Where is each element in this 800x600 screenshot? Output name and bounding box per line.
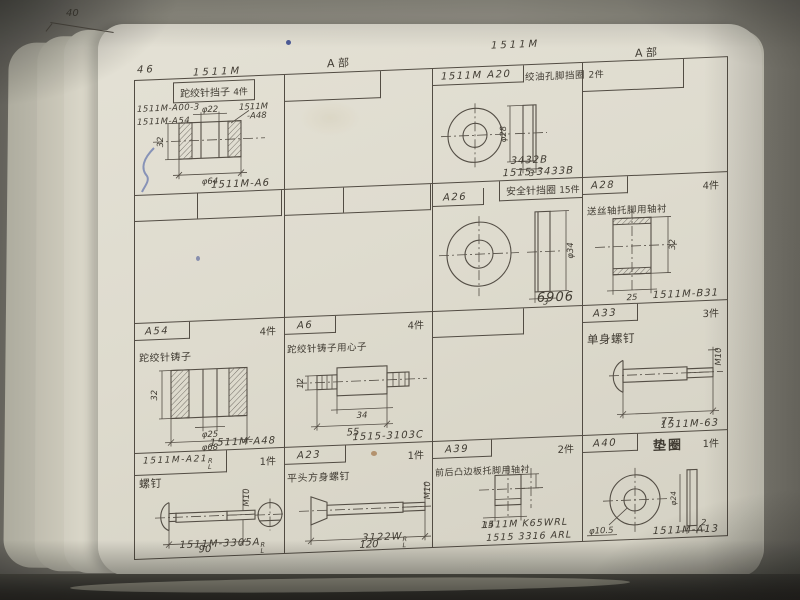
section-header-left: A 部 [327,54,349,71]
part-number: 3432B [511,154,548,166]
part-number: 1515 3316 ARL [486,529,572,543]
dim-text: 34 [357,411,368,421]
table-cell-r3c4: A33 3件 单身螺钉 M10 77 1511M-63 [583,300,727,436]
label-box-divider [197,193,198,218]
part-label: A33 [583,304,638,323]
blue-ink-dot [286,40,291,45]
part-label: A26 [433,188,484,207]
part-qty: 1件 [260,452,276,468]
part-label: A6 [285,316,336,335]
part-label: A39 [433,440,492,459]
part-label: A40 [583,434,638,453]
dim-text: 32 [150,390,160,401]
table-cell-r3c1: A54 4件 跎绞针铸子 φ25 φ68 32 1511M-A48 [135,318,285,454]
part-qty: 4件 [233,87,248,98]
empty-label-box [285,184,431,216]
table-cell-r2c2 [285,184,433,318]
part-qty: 4件 [260,322,276,338]
table-cell-r1c4 [583,57,727,178]
table-cell-r2c3: A26 安全针挡圈 15件 φ34 3 6906 [433,178,583,312]
part-number: 1511M-A13 [653,524,719,538]
part-number: 1515-3433B [503,165,574,179]
callout-text: -A48 [247,111,267,122]
table-cell-r2c4: A28 4件 送丝轴托脚用轴衬 32 25 1511M-B31 [583,172,727,306]
dim-text: φ24 [669,491,678,506]
part-qty: 3件 [703,305,719,321]
model-header-right: 1511M [491,39,540,52]
empty-label-box [433,308,524,338]
dim-text: M10 [242,488,252,507]
table-cell-r4c3: A39 2件 前后凸边板托脚用轴衬 14 1511M K65WRL 1515 3… [433,436,583,547]
part-title: 安全针挡圈 [506,185,556,198]
section-header-right: A 部 [635,44,657,61]
table-cell-r4c2: A23 1件 平头方身螺钉 M10 120 3122WRL [285,442,433,553]
table-cell-r3c2: A6 4件 跎绞针铸子用心子 12 34 55 151 [285,312,433,448]
dim-text: φ28 [499,125,509,142]
part-title-box: 安全针挡圈 15件 [499,178,582,201]
part-qty: 4件 [703,177,719,193]
table-cell-r2c1 [135,190,285,324]
part-label: 1511M A20 [433,65,524,86]
part-title-box: 跎绞针挡子 4件 [173,79,255,103]
part-label: A28 [583,176,628,195]
empty-label-box [135,190,282,222]
part-qty: 2件 [558,440,574,456]
paper-stain [300,100,360,136]
handwritten-margin-note: 40 [66,8,79,19]
dim-text: 25 [627,293,638,303]
part-label: A23 [285,445,346,464]
part-number: 1511M-63 [661,418,719,431]
part-title: 垫圈 [653,434,683,454]
dim-text: M10 [714,347,724,366]
label-box-divider [343,188,344,213]
part-qty: 1件 [408,446,424,462]
part-drawing-flat-head-screw: M10 120 [285,462,433,552]
photo-of-parts-catalog-page: 40 46 1511M A 部 1511M A 部 跎绞针挡子 4件 1511M… [0,0,800,600]
dim-text: 32 [668,239,678,250]
empty-label-box [583,59,684,92]
dim-text: φ34 [566,242,576,259]
page-number: 46 [137,64,156,76]
dim-text: φ22 [202,105,218,116]
part-qty: 1件 [703,435,719,451]
part-qty: 4件 [408,316,424,332]
blue-ink-scribble [138,146,162,194]
empty-label-box [285,71,381,102]
part-number: 3122WRL [362,531,408,550]
table-cell-r4c4: A40 垫圈 1件 φ10.5 φ24 2 1511M-A13 [583,430,727,541]
part-number: 1511M-3305ARL [179,537,266,557]
table-cell-r4c1: 1511M-A21RL 1件 螺钉 M10 90 1511M-3305AR [135,448,285,559]
part-title: 跎绞针挡子 [180,87,230,100]
parts-table: 46 1511M A 部 1511M A 部 跎绞针挡子 4件 1511M-A0… [134,56,728,560]
dim-text: M10 [423,481,433,500]
part-number: 1511M-A6 [211,178,270,191]
table-cell-r3c3 [433,306,583,442]
table-cell-r1c3: 1511M A20 绞油孔脚挡圈 2件 φ28 3 3432B 1515-343… [433,63,583,184]
part-number: 6906 [537,289,574,305]
dim-text: 12 [296,378,306,389]
blue-ink-dot [196,256,200,261]
paper-speck [371,451,377,456]
part-qty: 15件 [559,185,579,196]
part-label: A54 [135,322,190,341]
